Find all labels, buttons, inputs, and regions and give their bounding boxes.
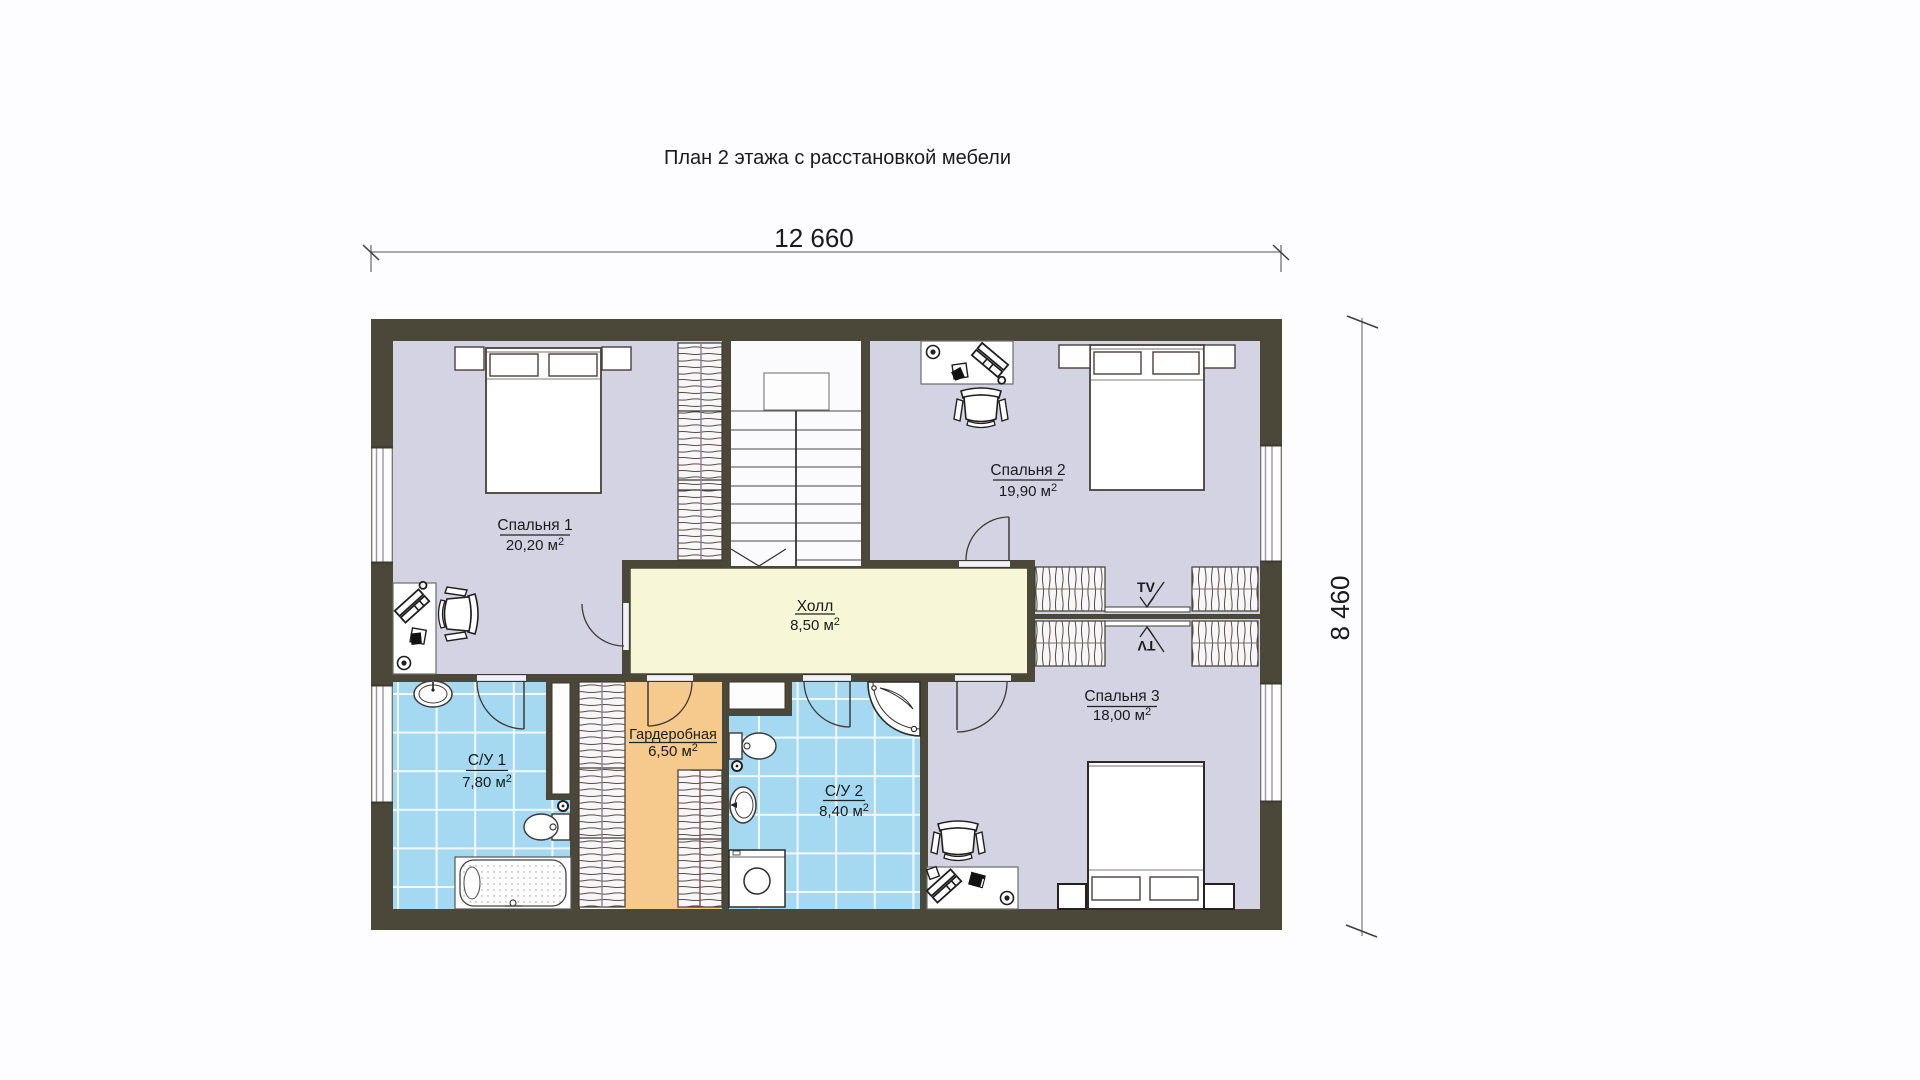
svg-text:6,50 м2: 6,50 м2 [648,742,698,760]
svg-text:Спальня 2: Спальня 2 [990,462,1065,479]
svg-text:19,90 м2: 19,90 м2 [999,482,1057,500]
svg-text:TV: TV [1137,638,1156,654]
svg-text:С/У 2: С/У 2 [825,783,863,800]
svg-text:С/У 1: С/У 1 [468,752,506,769]
svg-text:Спальня 3: Спальня 3 [1084,688,1159,705]
svg-text:План 2 этажа с расстановкой ме: План 2 этажа с расстановкой мебели [664,147,1011,169]
svg-text:Спальня 1: Спальня 1 [497,517,572,534]
svg-text:8,50 м2: 8,50 м2 [790,616,840,634]
svg-text:8,40 м2: 8,40 м2 [819,802,869,820]
svg-text:Холл: Холл [797,598,834,615]
svg-text:TV: TV [1137,579,1156,595]
svg-text:Гардеробная: Гардеробная [629,727,717,743]
svg-text:20,20 м2: 20,20 м2 [506,536,564,554]
svg-text:12 660: 12 660 [774,223,854,253]
svg-text:7,80 м2: 7,80 м2 [462,773,512,791]
svg-text:18,00 м2: 18,00 м2 [1093,706,1151,724]
svg-text:8 460: 8 460 [1325,575,1355,640]
